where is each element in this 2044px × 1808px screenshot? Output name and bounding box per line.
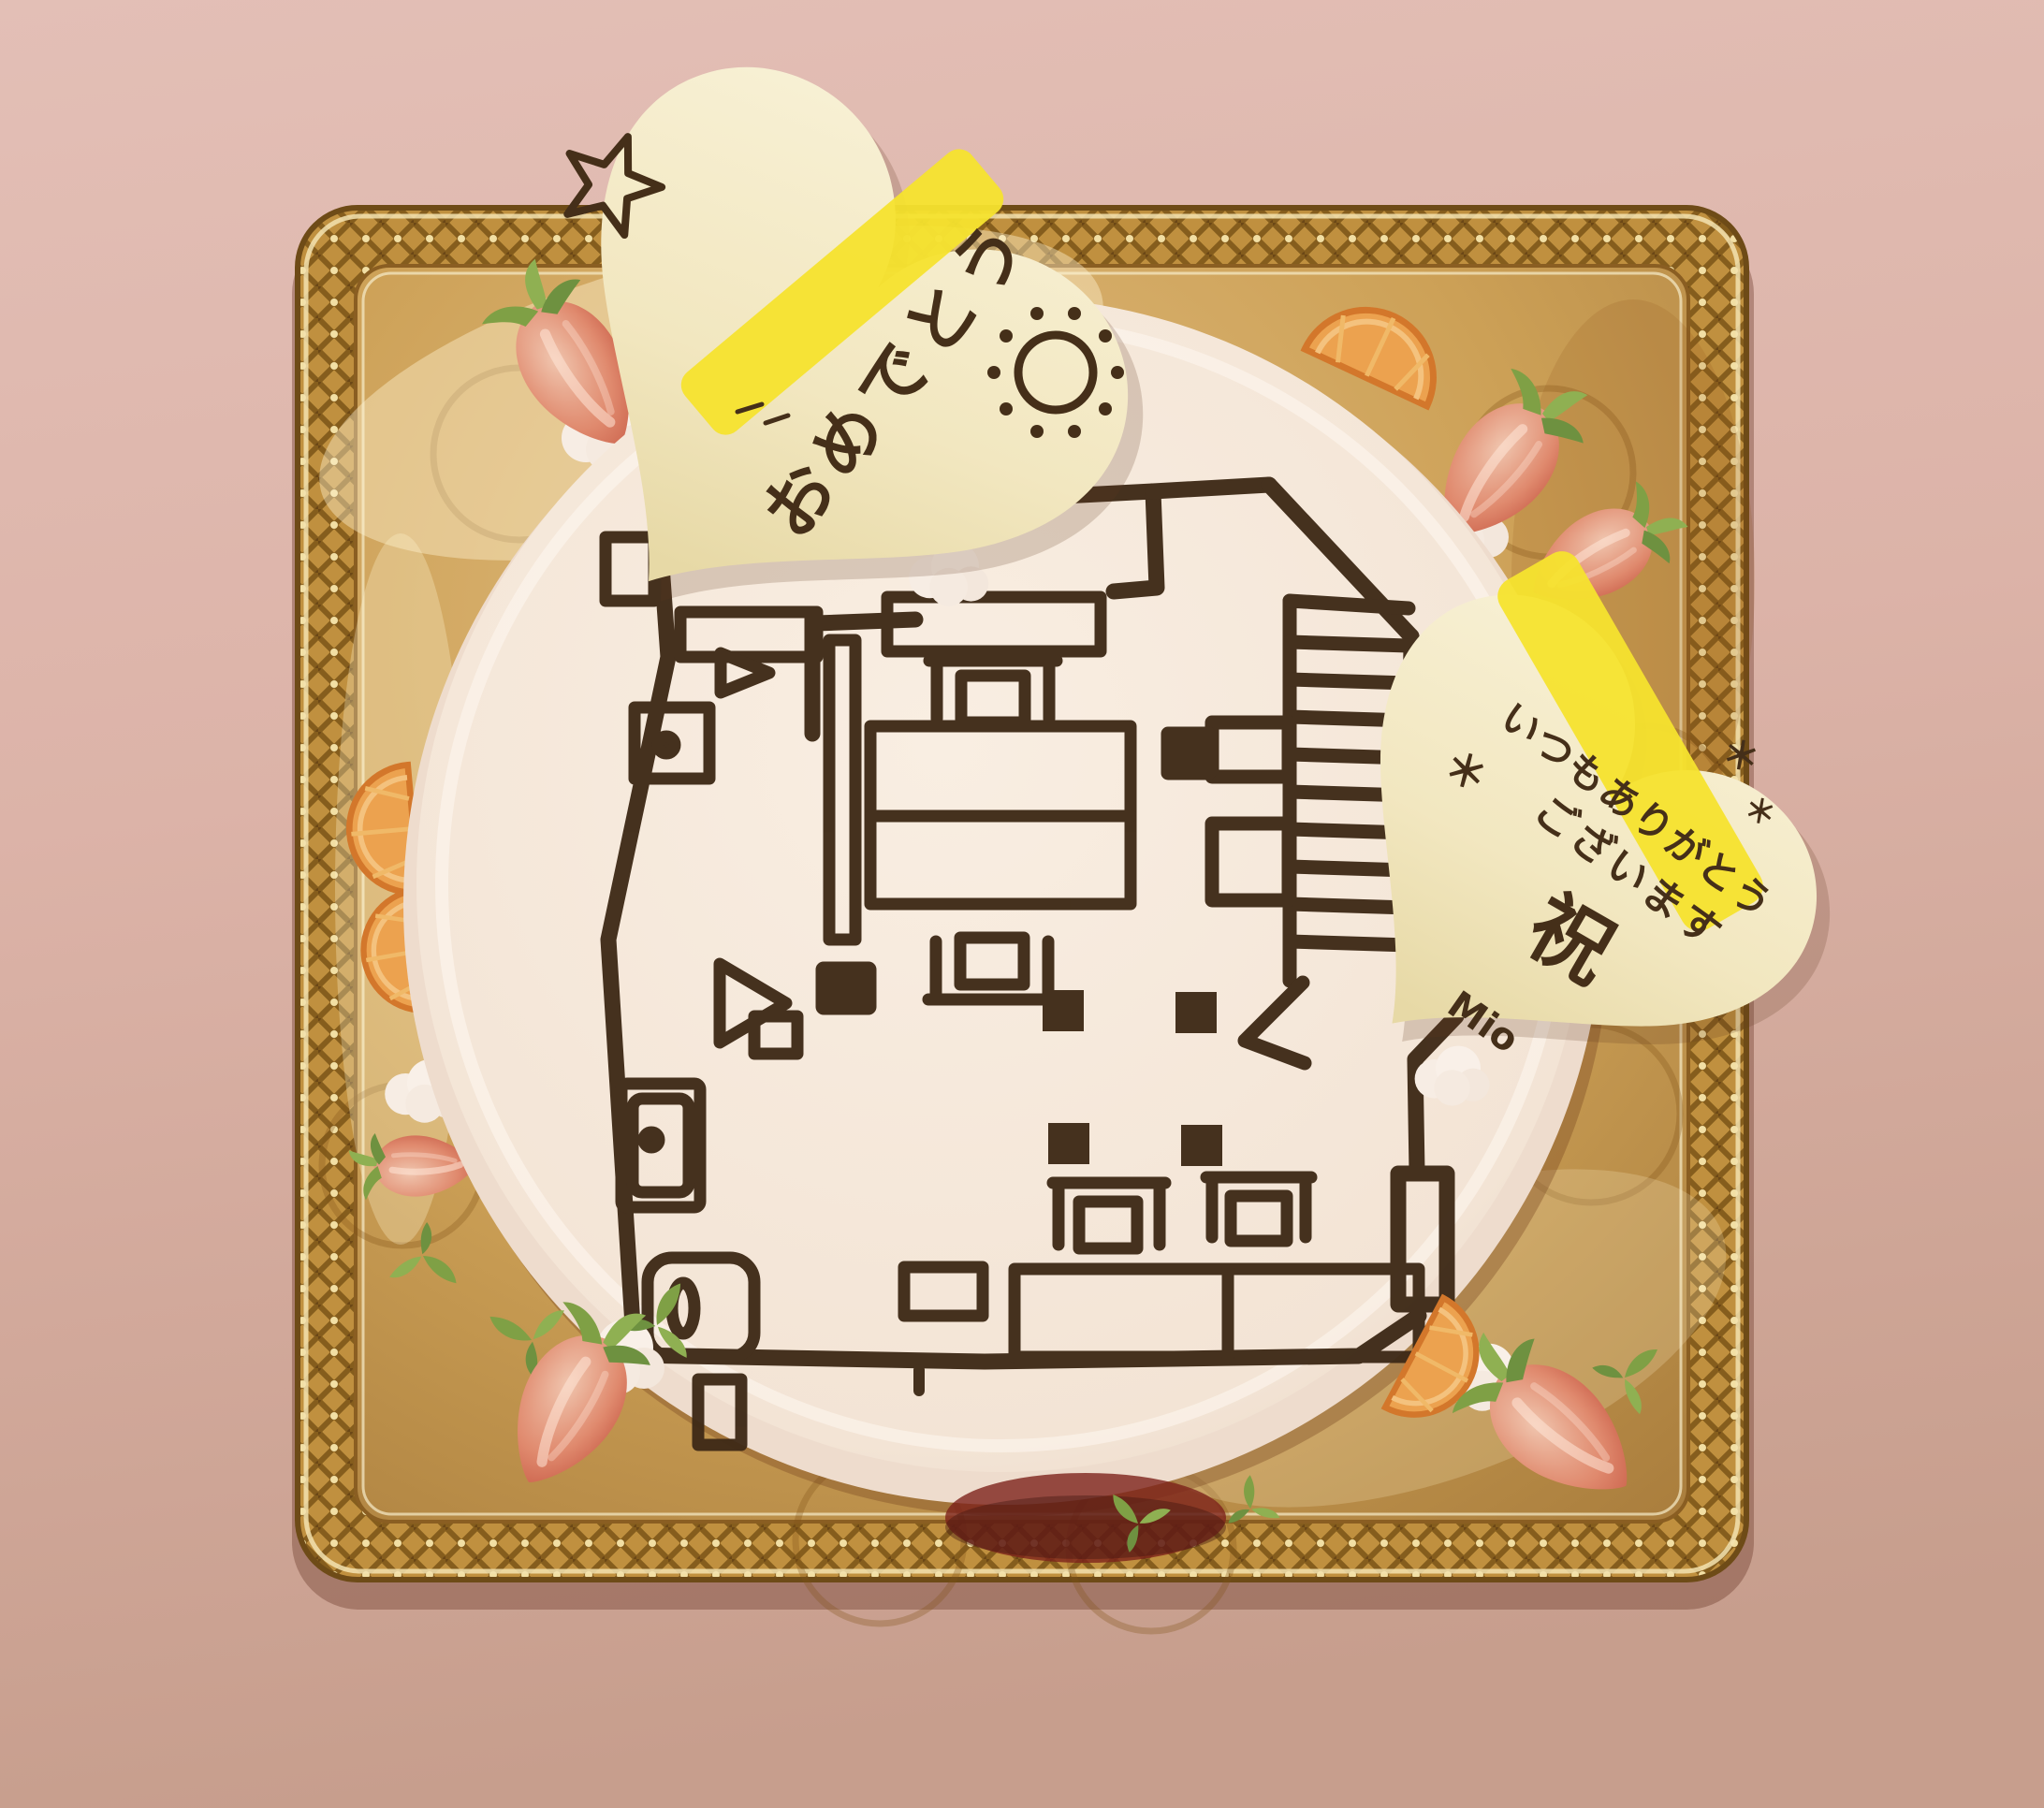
asterisk-mark: ＊: [1741, 791, 1778, 833]
cake-photo: おめでとう いつもありがとう ございます 祝 Mio ＊ ＊ ＊: [0, 0, 2044, 1808]
column-dot: [1168, 734, 1209, 773]
strawberry-shadow: [945, 1495, 1226, 1559]
asterisk-mark: ＊: [1718, 733, 1762, 781]
